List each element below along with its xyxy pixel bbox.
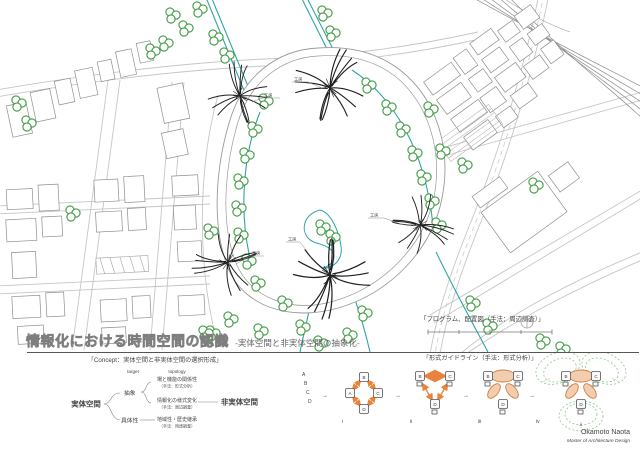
page-subtitle: -実体空間と非実体空間の抽象化-	[235, 338, 360, 348]
stage-i: B A C D	[346, 373, 383, 414]
concept-header-left: target	[127, 369, 139, 374]
stage-iii: B C D	[484, 370, 523, 414]
signature-name: Okamoto Naota	[581, 429, 630, 436]
concept-branch-top: 抽象	[124, 389, 136, 397]
concept-item-1-method: （手法：形式分析）	[159, 383, 195, 389]
stage-label-ii: ii	[410, 419, 412, 425]
concept-sink: 非実体空間	[221, 398, 258, 407]
structure-label: 工房	[294, 76, 302, 83]
guideline-diagram: 「形式ガイドライン（手法：形式分析）」 A B C D → → → → B A …	[302, 352, 631, 431]
svg-text:B: B	[418, 374, 421, 379]
page-title: 情報化における時間空間の認識	[26, 333, 229, 349]
scale-bar	[428, 330, 552, 335]
concept-header-right: topology	[168, 369, 186, 374]
svg-text:B: B	[564, 374, 567, 379]
concept-diagram: 「Concept：実体空間と非実体空間の選択形成」 target topolog…	[71, 356, 258, 429]
stage-label-iii: iii	[478, 419, 481, 425]
presentation-board: 工房 工房 工房 工房 工房 「プログラム、配置図（手法：周辺調査）」 情報化に…	[0, 0, 640, 453]
sequence-a: A	[302, 372, 306, 378]
stage-iv-annotation: A	[580, 422, 583, 427]
flow-arrow-3: →	[463, 393, 469, 399]
site-plan-map: 工房 工房 工房 工房 工房 「プログラム、配置図（手法：周辺調査）」	[0, 0, 640, 352]
stage-iv: B C D A	[531, 352, 631, 431]
svg-text:B: B	[486, 374, 489, 379]
svg-text:B: B	[362, 375, 365, 380]
structure-label: 工房	[264, 92, 272, 99]
bottom-panel: 「Concept：実体空間と非実体空間の選択形成」 target topolog…	[0, 352, 640, 453]
buildings-upper-left	[0, 36, 197, 189]
flow-arrow-1: →	[322, 393, 328, 399]
structure-label: 工房	[252, 250, 260, 257]
title-block: 情報化における時間空間の認識-実体空間と非実体空間の抽象化-	[26, 331, 360, 351]
concept-item-3-method: （手法：用途調査）	[159, 423, 195, 429]
stage-label-i: i	[342, 419, 343, 425]
parking-lot	[96, 255, 149, 274]
concept-caption: 「Concept：実体空間と非実体空間の選択形成」	[88, 356, 222, 364]
concept-source: 実体空間	[71, 400, 101, 409]
concept-item-2: 情報化の様式変化	[157, 397, 197, 404]
signature-title: Master of Architecture Design	[567, 438, 630, 444]
stage-label-iv: iv	[536, 419, 540, 425]
title-divider	[27, 352, 639, 353]
buildings-right-middle	[470, 139, 591, 253]
sequence-b: B	[304, 381, 308, 387]
sequence-d: D	[308, 399, 312, 405]
concept-item-2-method: （手法：周辺調査）	[159, 404, 195, 410]
buildings-bottom-left	[4, 173, 206, 349]
sequence-c: C	[306, 390, 310, 396]
stage-ii: B C D	[416, 372, 455, 415]
guideline-caption: 「形式ガイドライン（手法：形式分析）」	[423, 354, 537, 362]
concept-item-1: 場と機能の関係性	[157, 376, 197, 383]
flow-arrow-4: →	[529, 393, 535, 399]
structure-label: 工房	[370, 212, 378, 219]
signature-block: Okamoto Naota Master of Architecture Des…	[567, 429, 630, 444]
structure-label: 工房	[288, 236, 296, 243]
concept-item-3: 地域性・歴史継承	[157, 416, 197, 423]
buildings-upper-right	[421, 1, 580, 150]
concept-branch-bottom: 具体性	[121, 417, 139, 425]
flow-arrow-2: →	[395, 393, 401, 399]
